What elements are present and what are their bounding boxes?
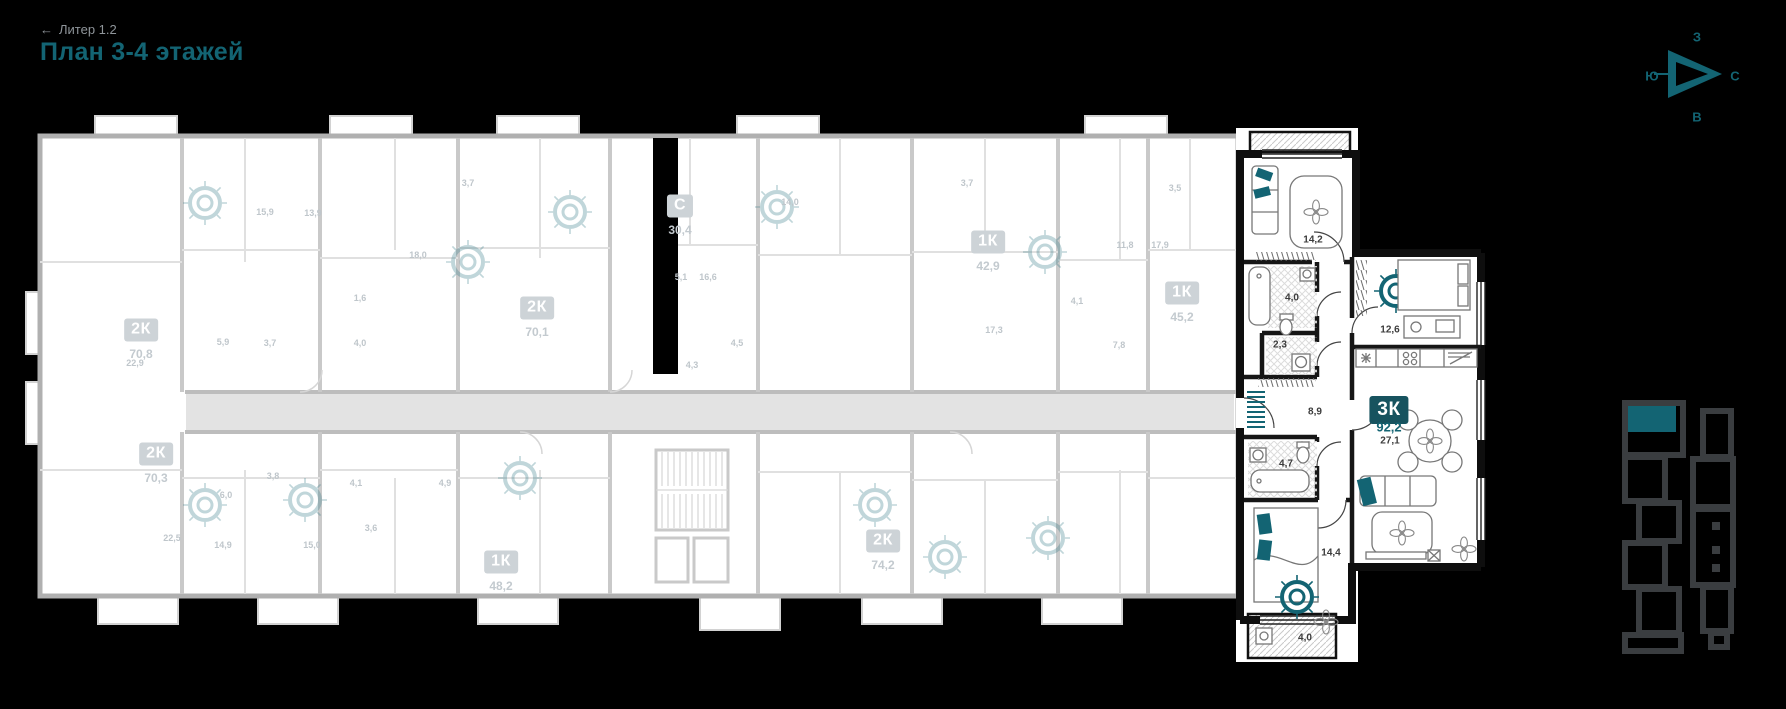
unit-badge-1К[interactable]: 1К xyxy=(971,231,1005,254)
ventilation-shaft xyxy=(653,138,678,374)
elevator-icon xyxy=(656,538,688,582)
corridor xyxy=(186,394,1234,430)
floor-plan-page: ←Литер 1.2 План 3-4 этажей З Ю С В xyxy=(0,0,1786,709)
unit-badge-2К[interactable]: 2К xyxy=(124,319,158,342)
building-locator-minimap[interactable] xyxy=(1612,398,1752,660)
unit-badge-2К[interactable]: 2К xyxy=(520,297,554,320)
unit-badge-1К[interactable]: 1К xyxy=(1165,282,1199,305)
apartment-3k-hotspot[interactable] xyxy=(1236,128,1485,662)
elevator-icon xyxy=(694,538,728,582)
unit-badge-2К[interactable]: 2К xyxy=(866,530,900,553)
unit-badge-1К[interactable]: 1К xyxy=(484,551,518,574)
unit-badge-С[interactable]: С xyxy=(667,195,693,218)
minimap-current-section xyxy=(1628,406,1676,432)
floor-plan xyxy=(0,0,1786,709)
unit-badge-2К[interactable]: 2К xyxy=(139,443,173,466)
